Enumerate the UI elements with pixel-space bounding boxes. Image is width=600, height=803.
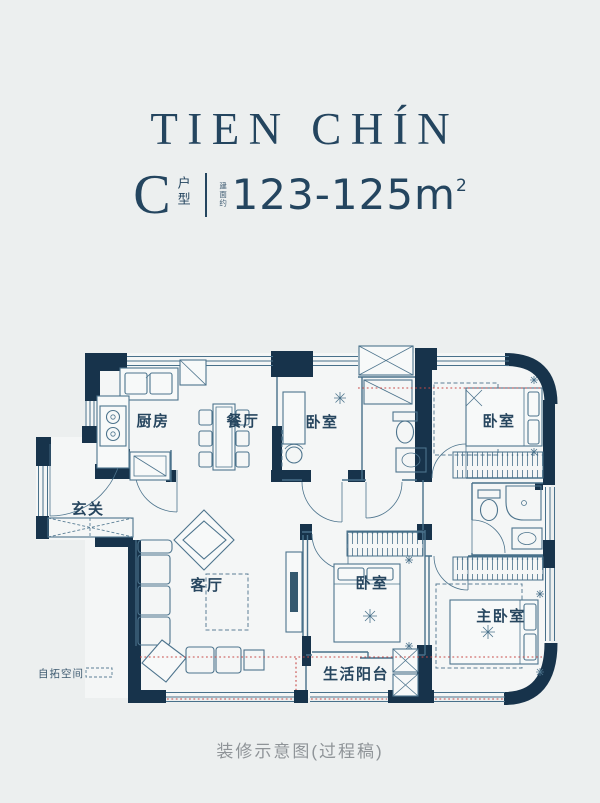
bedside-plant-icon <box>405 556 413 564</box>
floor-plan: 厨房 餐厅 卧室 卧室 玄关 客厅 卧室 主卧室 生活阳台 自拓空间 <box>0 0 600 803</box>
bedside-plant-icon <box>536 668 544 676</box>
room-label-kitchen: 厨房 <box>136 412 169 430</box>
room-label-balcony: 生活阳台 <box>323 665 389 683</box>
room-label-bedroom-south: 卧室 <box>355 574 388 592</box>
bedside-plant-icon <box>530 376 538 384</box>
washing-machine <box>393 649 418 696</box>
floor-plan-page: TIEN CHÍN C 户型 建面约 123-125m2 <box>0 0 600 803</box>
desk <box>283 392 305 444</box>
bedside-plant-icon <box>530 448 538 456</box>
wardrobe-master-bedroom <box>453 557 543 580</box>
plan-caption: 装修示意图(过程稿) <box>0 737 600 762</box>
room-label-master-bedroom: 主卧室 <box>476 607 526 625</box>
room-label-living: 客厅 <box>189 576 223 594</box>
wardrobe-bedroom-south <box>347 531 423 556</box>
room-label-bedroom-east: 卧室 <box>482 412 515 430</box>
storage-closet <box>359 346 413 375</box>
room-label-dining: 餐厅 <box>226 412 259 430</box>
room-label-foyer: 玄关 <box>71 500 104 518</box>
wardrobe-bedroom-east <box>453 452 543 478</box>
oven <box>130 452 170 480</box>
plant-icon <box>334 392 346 404</box>
bedside-plant-icon <box>536 590 544 598</box>
refrigerator <box>180 360 206 385</box>
room-label-expansion-space: 自拓空间 <box>38 667 84 680</box>
room-label-bedroom-north: 卧室 <box>305 413 338 431</box>
balcony-fixtures <box>393 649 418 696</box>
tv-cabinet <box>286 552 302 632</box>
